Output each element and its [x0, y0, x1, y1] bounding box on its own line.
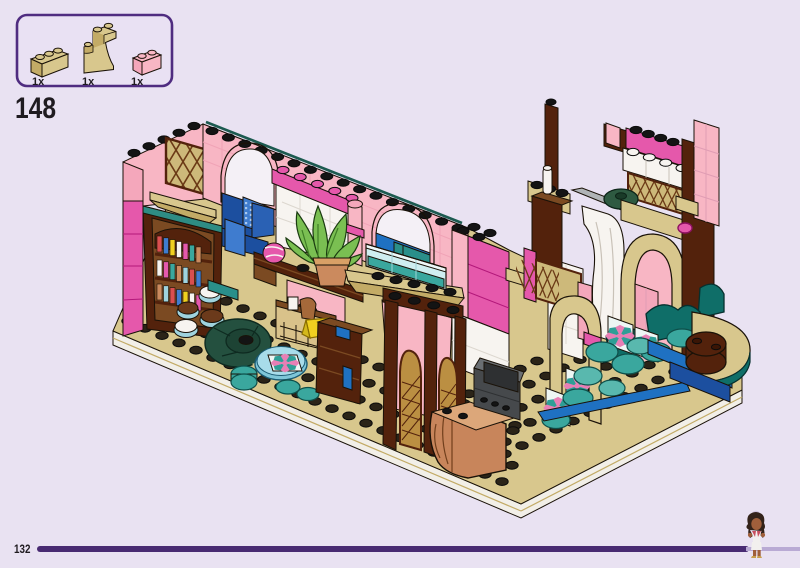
svg-text:148: 148 — [15, 92, 56, 125]
svg-text:1x: 1x — [32, 76, 45, 88]
svg-text:1x: 1x — [82, 76, 95, 88]
svg-text:1x: 1x — [131, 76, 144, 88]
